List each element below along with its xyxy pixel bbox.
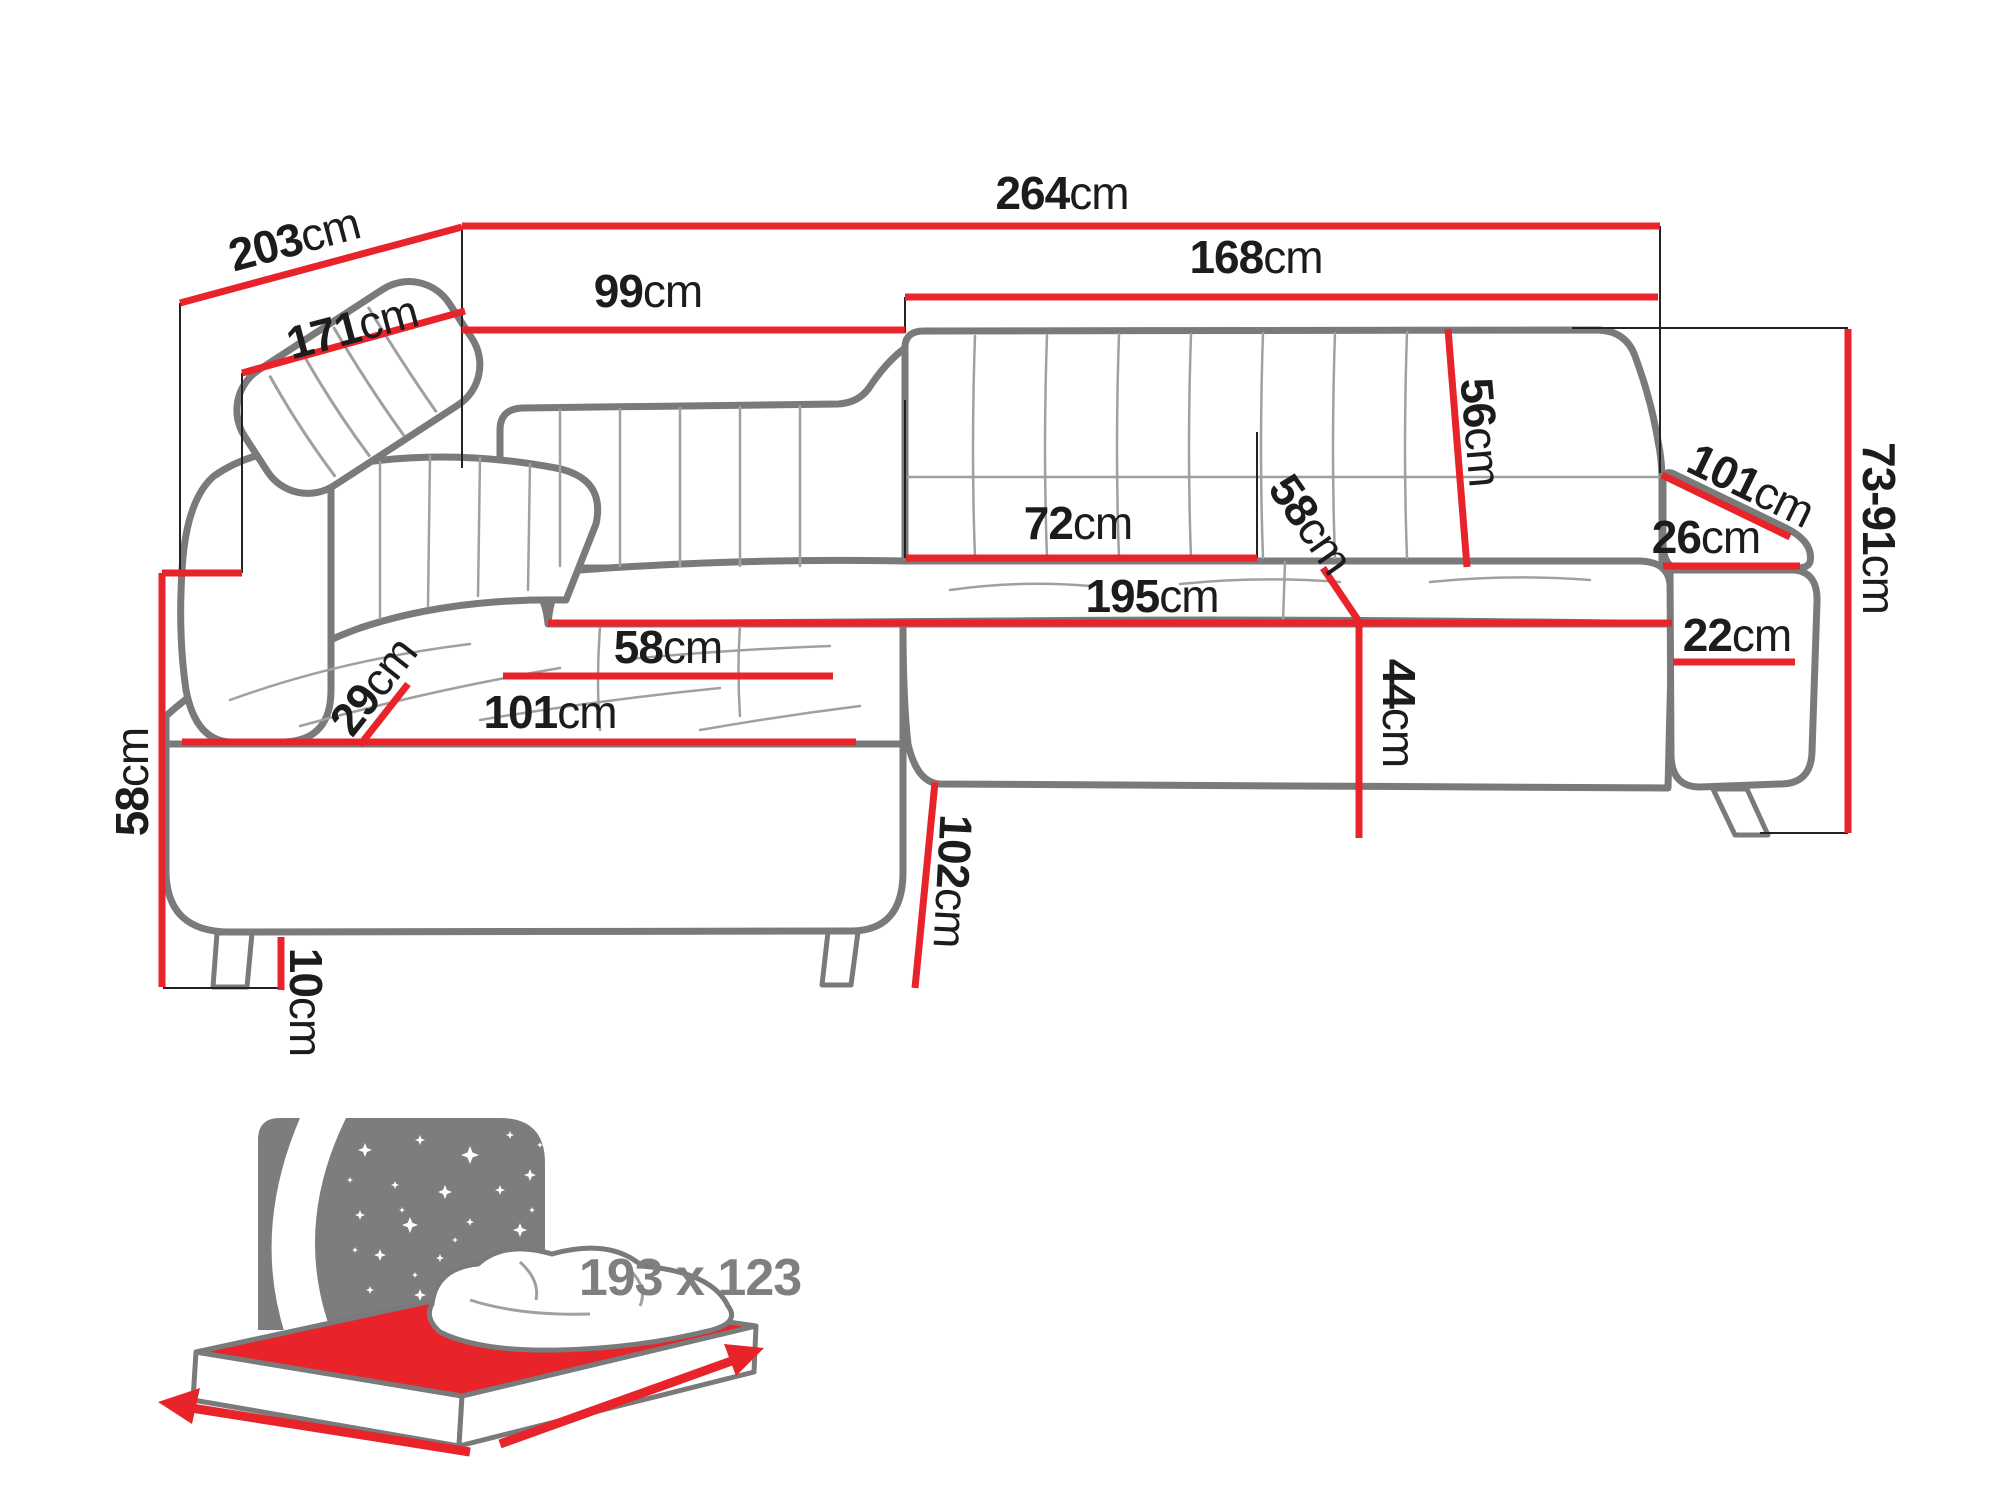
dimension-label-seat-height: 44cm bbox=[1373, 659, 1425, 768]
sofa-leg bbox=[822, 932, 858, 985]
dimension-label-width-total: 264cm bbox=[995, 167, 1128, 219]
arrowhead-icon bbox=[158, 1388, 200, 1424]
sofa-leg bbox=[213, 933, 252, 987]
dimension-label-depth-total: 203cm bbox=[223, 197, 365, 282]
dimension-label-chaise-depth: 102cm bbox=[924, 813, 983, 949]
sofa-leg bbox=[1713, 789, 1768, 835]
dimension-label-seat-width-mid: 72cm bbox=[1024, 497, 1133, 549]
dimension-label-sleeping-area-size: 193 x 123 bbox=[579, 1249, 801, 1307]
sofa-dimension-diagram: 264cm203cm171cm99cm168cm56cm72cm58cm195c… bbox=[0, 0, 2000, 1500]
dimension-label-chaise-seat-width: 58cm bbox=[614, 621, 723, 673]
dimension-label-width-right-section: 168cm bbox=[1189, 231, 1322, 283]
sofa-body-part bbox=[903, 624, 1672, 788]
dimension-label-armrest-right-width: 26cm bbox=[1652, 511, 1761, 563]
dimension-label-height-range-right: 73-91cm bbox=[1853, 442, 1905, 614]
dimension-label-height-left: 58cm bbox=[106, 728, 158, 837]
dimension-label-width-left-section: 99cm bbox=[594, 265, 703, 317]
dimension-label-armrest-right-height: 22cm bbox=[1683, 609, 1792, 661]
diagram-canvas: 264cm203cm171cm99cm168cm56cm72cm58cm195c… bbox=[0, 0, 2000, 1500]
dimension-label-chaise-length: 101cm bbox=[483, 686, 616, 738]
dimension-label-seat-length: 195cm bbox=[1085, 570, 1218, 622]
dimension-label-leg-height: 10cm bbox=[280, 948, 332, 1057]
sofa-body-part bbox=[1670, 570, 1817, 787]
sofa-body-part bbox=[166, 744, 903, 932]
dimension-label-backrest-height: 56cm bbox=[1450, 376, 1511, 489]
sofa-body-part bbox=[905, 330, 1662, 568]
